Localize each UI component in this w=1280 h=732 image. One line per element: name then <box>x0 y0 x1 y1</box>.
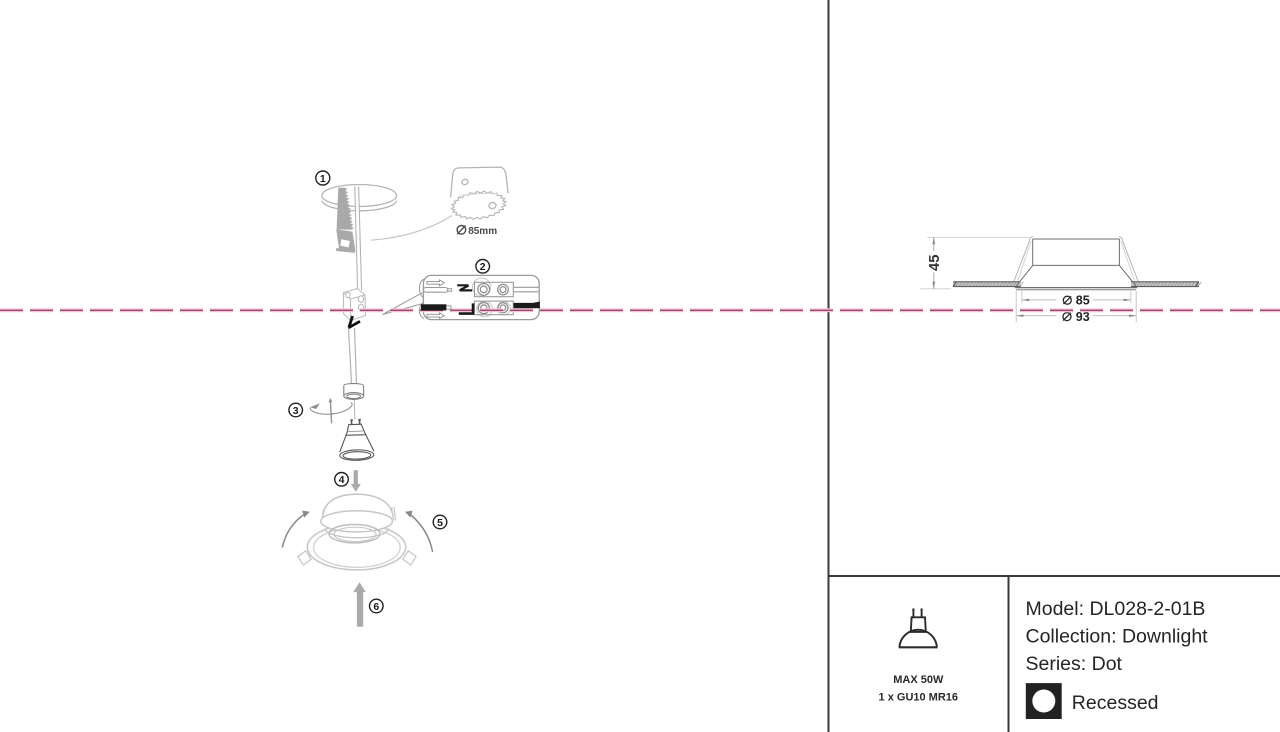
svg-text:85mm: 85mm <box>468 226 497 237</box>
svg-text:5: 5 <box>437 517 443 529</box>
svg-text:Model: DL028-2-01B: Model: DL028-2-01B <box>1026 598 1206 620</box>
svg-text:1: 1 <box>320 173 326 185</box>
svg-text:2: 2 <box>480 261 486 273</box>
svg-text:3: 3 <box>293 405 299 417</box>
svg-text:45: 45 <box>927 255 943 271</box>
svg-text:85: 85 <box>1076 294 1090 308</box>
svg-text:Recessed: Recessed <box>1072 692 1159 714</box>
svg-text:4: 4 <box>339 474 345 486</box>
svg-text:Series: Dot: Series: Dot <box>1026 653 1123 675</box>
svg-text:MAX 50W: MAX 50W <box>893 674 944 686</box>
svg-text:6: 6 <box>373 601 379 613</box>
svg-text:1 x GU10 MR16: 1 x GU10 MR16 <box>879 691 958 703</box>
svg-text:Collection: Downlight: Collection: Downlight <box>1026 625 1209 647</box>
